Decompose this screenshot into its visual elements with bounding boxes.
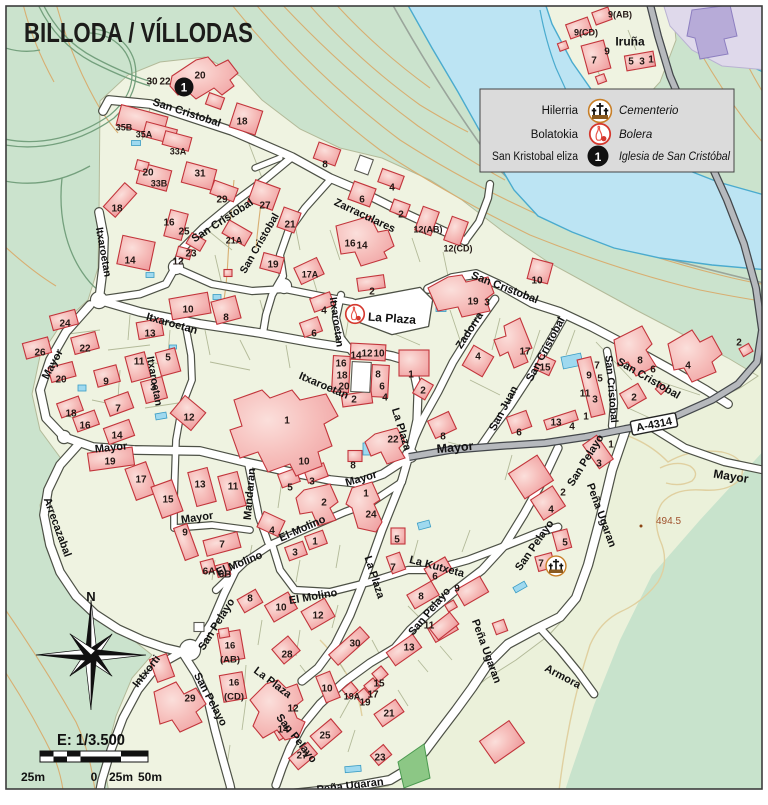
svg-text:18: 18 (65, 409, 77, 420)
svg-text:17A: 17A (302, 270, 319, 280)
svg-text:2: 2 (351, 395, 357, 406)
svg-text:14: 14 (124, 256, 136, 267)
svg-text:33B: 33B (151, 179, 168, 189)
svg-text:21: 21 (383, 709, 395, 720)
svg-text:1: 1 (284, 416, 290, 427)
svg-text:24: 24 (365, 510, 377, 521)
svg-text:12: 12 (361, 349, 373, 360)
svg-text:1: 1 (181, 83, 188, 95)
svg-text:8: 8 (223, 313, 229, 324)
svg-text:4: 4 (685, 361, 691, 372)
svg-text:4: 4 (389, 183, 395, 194)
svg-text:1: 1 (595, 150, 602, 164)
svg-text:11: 11 (228, 482, 239, 493)
svg-text:20: 20 (55, 375, 67, 386)
svg-text:10: 10 (373, 349, 385, 360)
svg-text:23: 23 (185, 249, 197, 260)
svg-text:6A: 6A (203, 567, 216, 578)
svg-text:19: 19 (267, 260, 279, 271)
svg-text:29: 29 (184, 694, 196, 705)
svg-text:7: 7 (115, 404, 121, 415)
svg-text:25m: 25m (109, 770, 133, 784)
svg-text:12: 12 (312, 611, 324, 622)
svg-text:20: 20 (194, 71, 206, 82)
svg-text:5: 5 (597, 374, 603, 385)
svg-text:9: 9 (103, 377, 109, 388)
svg-text:10: 10 (531, 276, 543, 287)
svg-text:16: 16 (229, 678, 240, 689)
svg-text:4: 4 (321, 306, 327, 317)
svg-text:22: 22 (79, 344, 91, 355)
svg-text:San Kristobal eliza: San Kristobal eliza (492, 151, 579, 163)
svg-text:10: 10 (182, 305, 194, 316)
svg-text:19: 19 (467, 297, 479, 308)
svg-text:Iruña: Iruña (615, 34, 645, 48)
svg-text:4: 4 (569, 422, 575, 433)
svg-text:25: 25 (178, 227, 190, 238)
svg-text:N: N (86, 589, 95, 604)
svg-text:50m: 50m (138, 770, 162, 784)
svg-text:(AB): (AB) (220, 655, 240, 666)
svg-text:7: 7 (594, 361, 600, 372)
svg-text:12: 12 (287, 704, 299, 715)
svg-text:4: 4 (382, 393, 388, 404)
svg-text:16: 16 (344, 239, 356, 250)
svg-text:9: 9 (604, 47, 610, 58)
svg-text:10: 10 (298, 457, 310, 468)
svg-text:16: 16 (79, 421, 91, 432)
svg-text:1: 1 (312, 537, 318, 548)
svg-text:2: 2 (369, 287, 375, 298)
svg-text:1: 1 (408, 370, 414, 381)
svg-text:5: 5 (287, 483, 293, 494)
svg-text:15: 15 (373, 679, 385, 690)
svg-text:6: 6 (311, 329, 317, 340)
svg-text:28: 28 (281, 650, 293, 661)
svg-text:31: 31 (194, 169, 206, 180)
svg-text:7: 7 (591, 56, 597, 67)
svg-text:3: 3 (309, 477, 315, 488)
svg-text:3: 3 (292, 548, 298, 559)
svg-text:494.5: 494.5 (656, 516, 681, 527)
svg-text:14: 14 (111, 431, 123, 442)
svg-text:9: 9 (454, 584, 460, 595)
svg-text:27: 27 (259, 201, 271, 212)
svg-text:2: 2 (736, 338, 742, 349)
svg-text:9: 9 (182, 528, 188, 539)
svg-text:5: 5 (394, 535, 400, 546)
svg-text:6: 6 (516, 428, 522, 439)
svg-text:14: 14 (350, 351, 362, 362)
svg-text:30: 30 (349, 639, 361, 650)
svg-text:Cementerio: Cementerio (619, 105, 679, 117)
svg-text:21A: 21A (226, 236, 243, 246)
svg-text:9(AB): 9(AB) (608, 10, 632, 20)
svg-text:18: 18 (236, 117, 248, 128)
svg-text:13: 13 (403, 643, 415, 654)
svg-text:7: 7 (538, 559, 544, 570)
svg-text:26: 26 (34, 348, 46, 359)
svg-text:13: 13 (144, 329, 156, 340)
svg-text:13: 13 (194, 480, 206, 491)
svg-text:6: 6 (359, 195, 365, 206)
svg-text:7: 7 (390, 563, 396, 574)
svg-text:11: 11 (134, 357, 145, 368)
svg-text:25: 25 (319, 731, 331, 742)
svg-text:2: 2 (321, 498, 327, 509)
svg-text:4: 4 (475, 352, 481, 363)
svg-text:5: 5 (165, 353, 171, 364)
svg-text:Bolera: Bolera (619, 129, 652, 141)
svg-text:8: 8 (247, 594, 253, 605)
svg-text:18: 18 (336, 371, 348, 382)
svg-text:10: 10 (275, 603, 287, 614)
svg-text:(CD): (CD) (224, 692, 244, 703)
svg-text:20: 20 (142, 168, 154, 179)
svg-text:1: 1 (583, 412, 589, 423)
svg-text:5: 5 (562, 538, 568, 549)
svg-text:Iglesia de San Cristóbal: Iglesia de San Cristóbal (619, 151, 730, 163)
svg-text:2: 2 (560, 488, 566, 499)
svg-text:3: 3 (592, 395, 598, 406)
svg-text:17: 17 (519, 347, 531, 358)
svg-text:9(CD): 9(CD) (574, 28, 598, 38)
svg-text:Bolatokia: Bolatokia (531, 129, 579, 141)
svg-text:19: 19 (104, 457, 116, 468)
svg-text:10: 10 (321, 684, 333, 695)
svg-text:24: 24 (59, 319, 71, 330)
svg-text:14: 14 (356, 241, 368, 252)
svg-text:16: 16 (225, 641, 236, 652)
svg-text:19A: 19A (344, 692, 361, 702)
svg-text:6: 6 (379, 382, 385, 393)
svg-text:23: 23 (374, 753, 386, 764)
svg-text:3: 3 (596, 459, 602, 470)
svg-text:1: 1 (608, 440, 614, 451)
svg-text:12(AB): 12(AB) (413, 225, 442, 235)
svg-text:E: 1/3.500: E: 1/3.500 (57, 732, 125, 749)
svg-text:12(CD): 12(CD) (443, 244, 472, 254)
svg-text:2: 2 (420, 386, 426, 397)
svg-text:8: 8 (322, 160, 328, 171)
svg-text:12: 12 (172, 257, 184, 268)
svg-text:2: 2 (631, 393, 637, 404)
svg-text:8: 8 (375, 370, 381, 381)
svg-text:BILLODA / VÍLLODAS: BILLODA / VÍLLODAS (24, 17, 253, 48)
svg-text:35B: 35B (116, 123, 133, 133)
svg-text:30: 30 (146, 77, 158, 88)
svg-text:12: 12 (183, 413, 195, 424)
svg-text:22: 22 (159, 77, 171, 88)
svg-text:5: 5 (628, 57, 634, 68)
svg-text:4: 4 (548, 505, 554, 516)
svg-text:13: 13 (550, 418, 562, 429)
svg-text:29: 29 (216, 195, 228, 206)
svg-text:33A: 33A (170, 147, 187, 157)
svg-text:15: 15 (162, 495, 174, 506)
svg-text:3: 3 (639, 57, 645, 68)
svg-text:21: 21 (284, 220, 296, 231)
svg-text:19: 19 (359, 698, 371, 709)
svg-text:8: 8 (350, 461, 356, 472)
svg-text:17: 17 (135, 475, 147, 486)
svg-text:4: 4 (269, 526, 275, 537)
svg-text:16: 16 (335, 359, 347, 370)
svg-text:18: 18 (111, 204, 123, 215)
svg-text:11: 11 (580, 389, 591, 400)
svg-text:25m: 25m (21, 770, 45, 784)
svg-text:16: 16 (163, 218, 175, 229)
svg-text:35A: 35A (136, 130, 153, 140)
svg-text:2: 2 (398, 210, 404, 221)
svg-text:7: 7 (219, 540, 225, 551)
svg-text:3: 3 (484, 298, 490, 309)
svg-text:8: 8 (418, 592, 424, 603)
svg-text:9: 9 (586, 371, 592, 382)
svg-text:1: 1 (363, 489, 369, 500)
svg-text:0: 0 (91, 770, 98, 784)
svg-text:1: 1 (648, 55, 654, 66)
svg-text:Hilerria: Hilerria (542, 105, 579, 117)
